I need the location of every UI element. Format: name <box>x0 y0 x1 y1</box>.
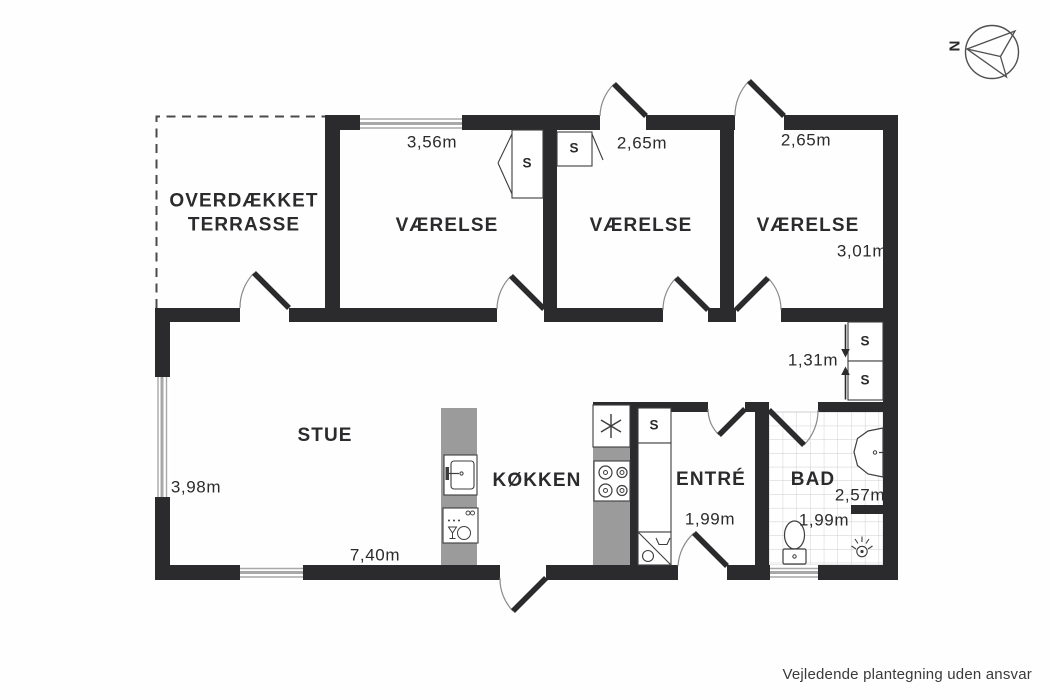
closet-label-hall-upper: S <box>860 334 869 351</box>
floorplan-canvas: OVERDÆKKET TERRASSE VÆRELSE 3,56m VÆRELS… <box>0 0 1050 700</box>
measurement-livingroom-width: 7,40m <box>350 544 400 565</box>
measurement-bedroom1-width: 3,56m <box>407 131 457 152</box>
room-label-bedroom1: VÆRELSE <box>396 214 499 238</box>
room-label-bedroom3: VÆRELSE <box>757 214 860 238</box>
closet-label-bedroom1: S <box>522 156 531 173</box>
washing-machine-icon <box>638 532 671 565</box>
kitchen-appliance-strip <box>593 405 630 565</box>
measurement-bedroom2-width: 2,65m <box>617 132 667 153</box>
measurement-bathroom-width: 1,99m <box>799 509 849 530</box>
closet-label-hall-lower: S <box>860 373 869 390</box>
disclaimer-note: Vejledende plantegning uden ansvar <box>782 666 1032 683</box>
measurement-bedroom3-width: 2,65m <box>781 129 831 150</box>
measurement-bedroom3-depth: 3,01m <box>837 240 887 261</box>
room-label-kitchen: KØKKEN <box>493 469 582 493</box>
sink-icon <box>444 455 477 495</box>
stove-icon <box>594 461 630 501</box>
room-label-terrace: OVERDÆKKET TERRASSE <box>169 189 318 237</box>
dishwasher-icon <box>443 508 478 543</box>
compass-icon <box>966 26 1019 79</box>
closet-label-entrance: S <box>649 418 658 435</box>
room-label-entrance: ENTRÉ <box>676 468 746 492</box>
closet-label-bedroom2: S <box>569 141 578 158</box>
floorplan-drawing <box>0 0 1050 700</box>
measurement-hallway-width: 1,31m <box>788 349 838 370</box>
compass-north-label: N <box>944 41 963 52</box>
measurement-entrance-width: 1,99m <box>685 508 735 529</box>
kitchen-island <box>441 408 478 565</box>
measurement-livingroom-depth: 3,98m <box>171 476 221 497</box>
fridge-icon <box>593 405 630 447</box>
room-label-bathroom: BAD <box>791 468 835 492</box>
room-label-bedroom2: VÆRELSE <box>590 214 693 238</box>
measurement-bathroom-depth: 2,57m <box>835 484 885 505</box>
room-label-livingroom: STUE <box>297 424 352 448</box>
